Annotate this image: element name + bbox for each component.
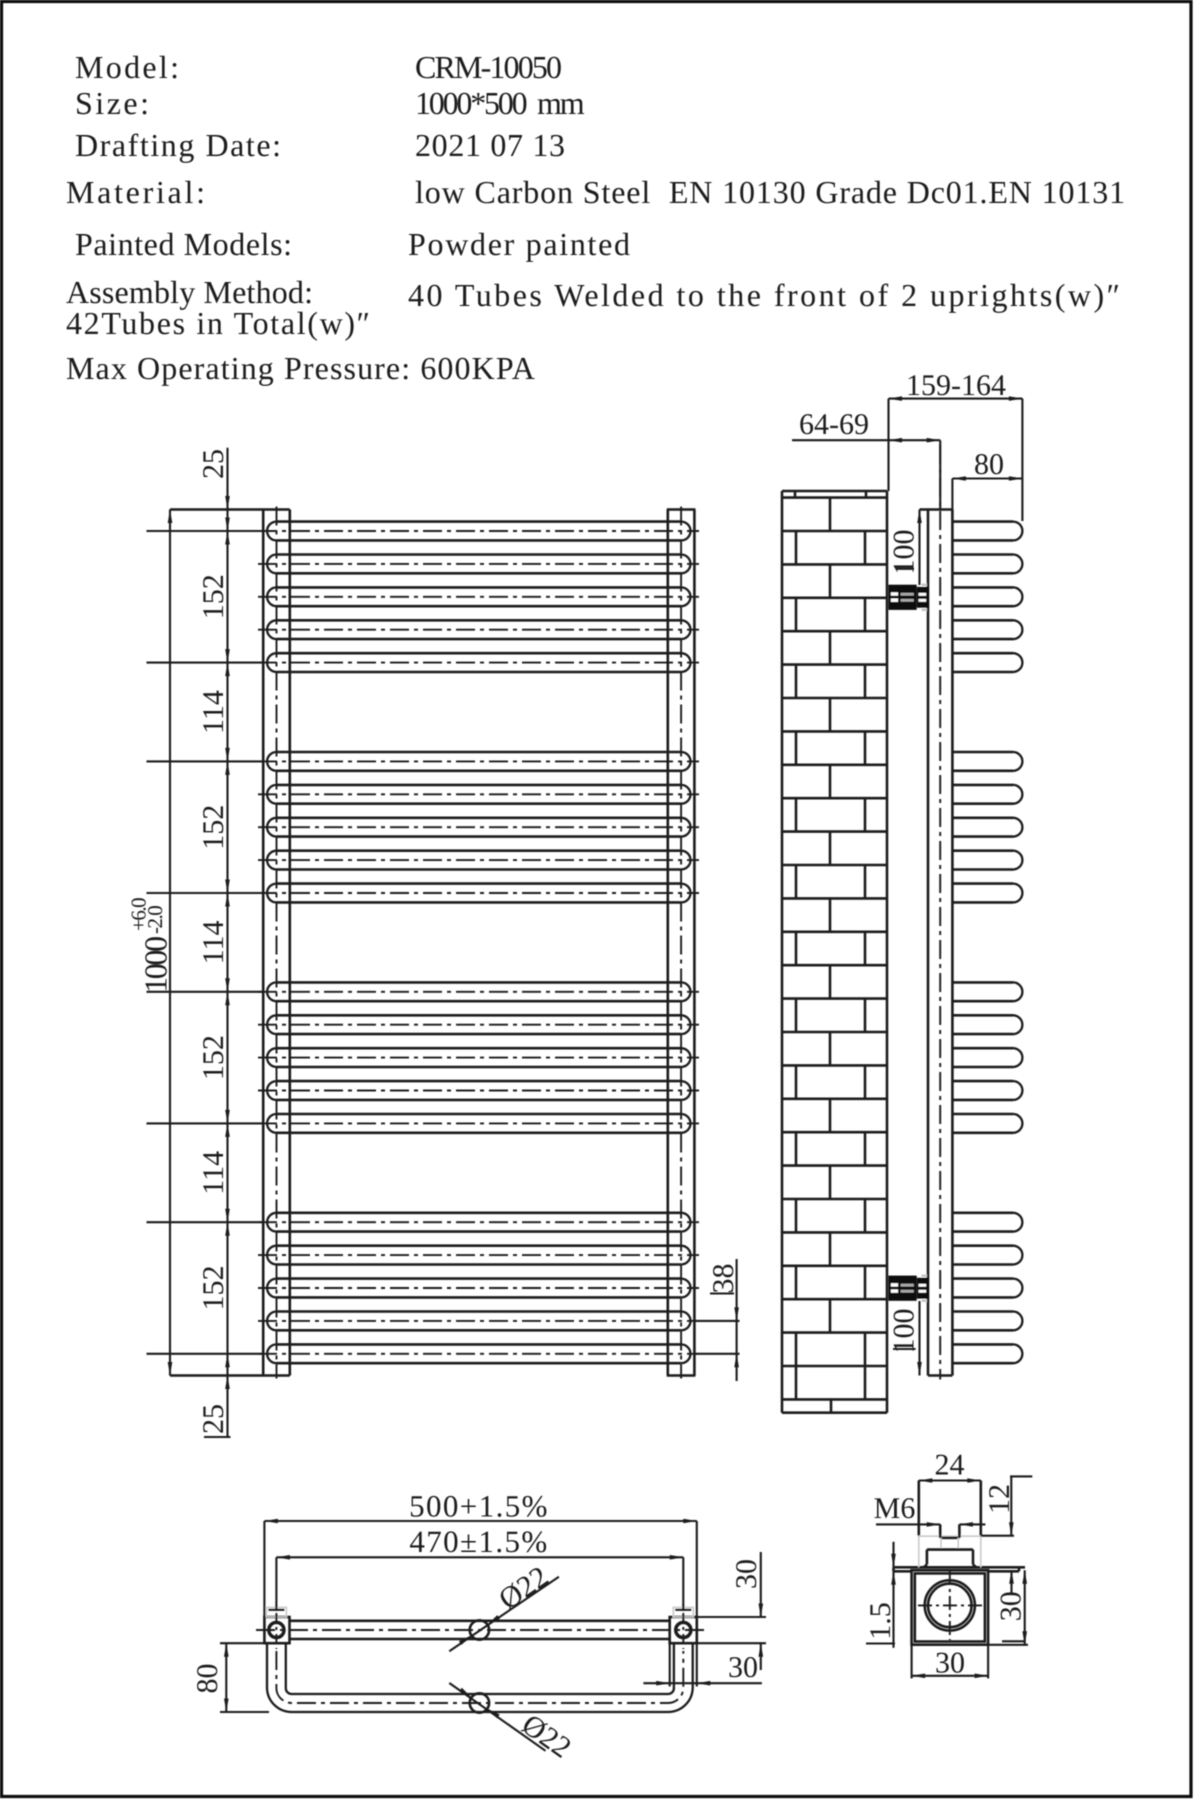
svg-text:152: 152 — [197, 805, 230, 850]
svg-text:114: 114 — [197, 920, 230, 964]
svg-text:159-164: 159-164 — [906, 369, 1006, 402]
svg-text:114: 114 — [197, 690, 230, 734]
svg-text:1.5: 1.5 — [864, 1602, 897, 1640]
svg-text:low Carbon Steel EN 10130 Gra: low Carbon Steel EN 10130 Grade Dc01.EN … — [415, 174, 1126, 210]
svg-text:24: 24 — [935, 1449, 965, 1482]
svg-text:Max Operating Pressure: 600KPA: Max Operating Pressure: 600KPA — [66, 350, 536, 386]
svg-text:1000: 1000 — [138, 937, 174, 993]
svg-text:Material:: Material: — [66, 174, 208, 210]
svg-text:42Tubes in Total(w)″: 42Tubes in Total(w)″ — [66, 305, 372, 341]
svg-text:Painted Models:: Painted Models: — [75, 226, 293, 262]
svg-text:500+1.5%: 500+1.5% — [409, 1489, 549, 1524]
svg-text:80: 80 — [974, 448, 1004, 481]
svg-text:114: 114 — [197, 1151, 230, 1195]
svg-text:38: 38 — [707, 1264, 740, 1294]
svg-text:Size:: Size: — [75, 85, 151, 121]
svg-text:152: 152 — [197, 1266, 230, 1311]
svg-text:152: 152 — [197, 1035, 230, 1080]
svg-text:30: 30 — [728, 1651, 758, 1684]
svg-text:64-69: 64-69 — [799, 408, 869, 441]
svg-text:2021 07 13: 2021 07 13 — [415, 127, 566, 163]
svg-text:Model:: Model: — [75, 49, 181, 85]
svg-text:30: 30 — [935, 1647, 965, 1680]
svg-text:12: 12 — [983, 1484, 1016, 1514]
svg-text:25: 25 — [197, 449, 230, 479]
svg-text:-2.0: -2.0 — [143, 906, 167, 934]
svg-text:25: 25 — [197, 1404, 230, 1434]
svg-text:100: 100 — [888, 1309, 921, 1354]
svg-text:M6: M6 — [874, 1492, 916, 1525]
svg-text:80: 80 — [191, 1664, 224, 1694]
svg-text:Powder painted: Powder painted — [408, 226, 632, 262]
svg-text:Drafting Date:: Drafting Date: — [75, 127, 283, 163]
svg-text:30: 30 — [730, 1559, 763, 1589]
svg-text:470±1.5%: 470±1.5% — [409, 1524, 548, 1559]
svg-text:152: 152 — [197, 574, 230, 619]
svg-text:CRM-10050: CRM-10050 — [415, 49, 561, 85]
svg-text:40 Tubes Welded to the front o: 40 Tubes Welded to the front of 2 uprigh… — [408, 277, 1122, 313]
svg-text:1000*500 mm: 1000*500 mm — [415, 85, 585, 121]
svg-text:30: 30 — [995, 1591, 1028, 1621]
